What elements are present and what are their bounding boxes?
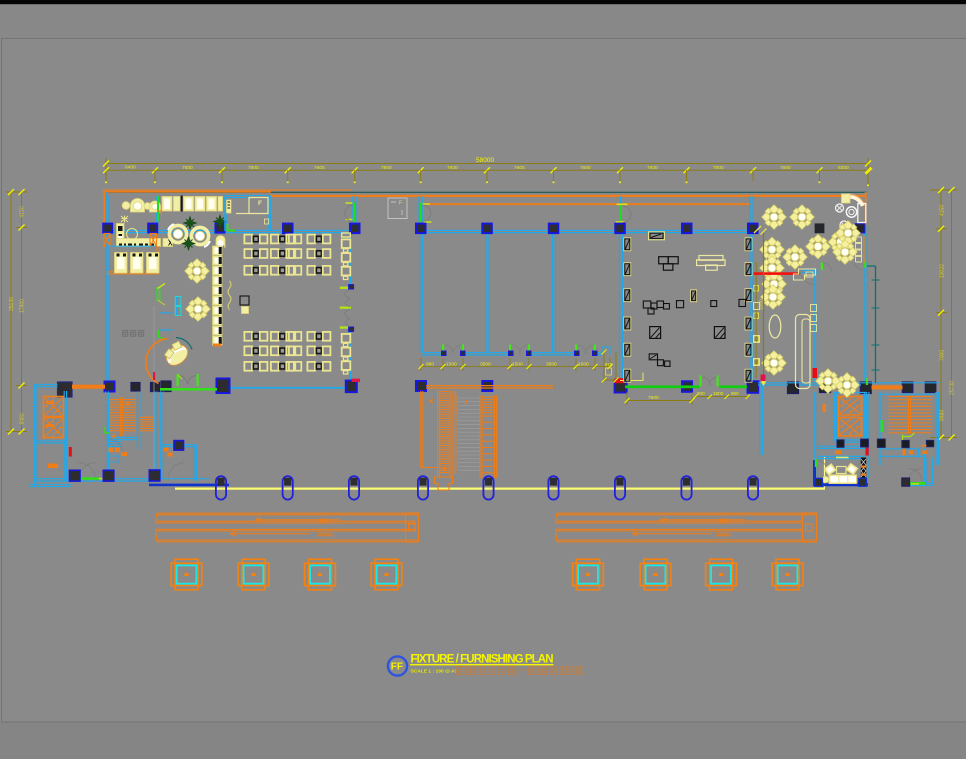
svg-text:9480: 9480 — [940, 410, 946, 421]
svg-text:58000: 58000 — [476, 157, 494, 164]
svg-text:25130: 25130 — [9, 297, 15, 311]
svg-text:970: 970 — [605, 362, 613, 368]
svg-text:3500: 3500 — [480, 361, 491, 367]
svg-text:900: 900 — [731, 391, 739, 396]
svg-text:DOWN: DOWN — [318, 533, 334, 539]
svg-text:7000: 7000 — [940, 350, 946, 361]
svg-text:7600: 7600 — [514, 165, 525, 171]
svg-text:6400: 6400 — [125, 165, 136, 171]
svg-text:1500: 1500 — [578, 361, 589, 367]
svg-text:7600: 7600 — [580, 165, 591, 171]
svg-text:7600: 7600 — [648, 395, 659, 401]
svg-text:DOWN: DOWN — [716, 533, 732, 539]
svg-text:F: F — [258, 200, 262, 207]
svg-text:25730: 25730 — [950, 381, 956, 395]
svg-text:1050: 1050 — [759, 299, 765, 310]
svg-text:SCALE 1 : 100 @ A3: SCALE 1 : 100 @ A3 — [411, 668, 458, 674]
svg-text:4150: 4150 — [940, 205, 946, 216]
svg-text:9480: 9480 — [20, 413, 26, 424]
svg-text:7600: 7600 — [780, 165, 791, 171]
svg-text:7600: 7600 — [713, 165, 724, 171]
svg-text:1500: 1500 — [512, 361, 523, 367]
svg-text:10022: 10022 — [940, 264, 946, 278]
svg-text:7600: 7600 — [182, 165, 193, 171]
svg-text:7600: 7600 — [314, 165, 325, 171]
svg-text:4150: 4150 — [20, 206, 26, 217]
svg-text:7600: 7600 — [647, 165, 658, 171]
svg-text:7600: 7600 — [447, 165, 458, 171]
svg-text:3500: 3500 — [546, 361, 557, 367]
svg-text:7600: 7600 — [381, 165, 392, 171]
svg-text:900: 900 — [697, 391, 705, 396]
svg-text:B2%: B2% — [320, 519, 331, 525]
svg-text:980: 980 — [426, 361, 434, 367]
svg-text:6300: 6300 — [838, 165, 849, 171]
svg-text:FIXTURE / FURNISHING PLAN: FIXTURE / FURNISHING PLAN — [411, 654, 554, 666]
svg-text:7600: 7600 — [248, 165, 259, 171]
svg-text:1500: 1500 — [446, 361, 457, 367]
svg-text:B2%: B2% — [720, 519, 731, 525]
svg-text:FF: FF — [391, 662, 403, 673]
svg-text:1800: 1800 — [713, 391, 724, 396]
svg-text:17960: 17960 — [20, 299, 26, 313]
